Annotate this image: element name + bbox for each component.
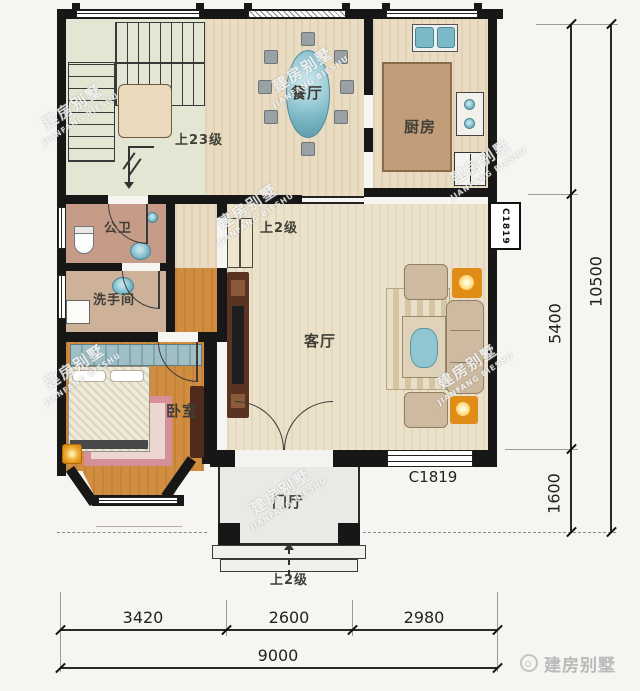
- stairwell-window-line: [77, 13, 199, 14]
- kitchen-window-line: [387, 13, 477, 14]
- side-table-lamp-glow: [456, 402, 470, 416]
- stove-burner: [464, 118, 475, 129]
- front-window-line: [388, 455, 472, 456]
- stair-treads-left: [68, 62, 115, 162]
- wall-bedroom-top-seg1: [57, 332, 158, 342]
- pillow: [72, 370, 106, 382]
- bay-sill-line: [96, 526, 182, 527]
- extension-line: [536, 24, 618, 25]
- dim-bottom-9000: 9000: [243, 646, 313, 665]
- bathroom-window-line: [61, 208, 62, 248]
- porch-column: [338, 523, 360, 545]
- wall-bath-divider-seg1: [66, 263, 122, 271]
- dining-chair: [334, 50, 348, 64]
- dim-right-1600: 1600: [545, 459, 564, 529]
- logo-text: 建房别墅: [544, 651, 616, 676]
- label-dining-room: 餐厅: [282, 86, 332, 102]
- label-bedroom: 卧室: [156, 404, 208, 420]
- stair-arrow-horizontal: [128, 146, 154, 148]
- dining-window: [248, 10, 346, 18]
- nightstand-lamp: [62, 444, 82, 464]
- label-front-window-code: C1819: [406, 468, 460, 486]
- wall-mid-seg1: [57, 195, 108, 204]
- dining-chair: [258, 80, 272, 94]
- logo-icon: [520, 654, 538, 672]
- sofa-cushion-line: [450, 362, 480, 363]
- wall-bedroom-right: [204, 342, 217, 454]
- kitchen-sink-basin: [437, 27, 455, 48]
- dim-bottom-2600: 2600: [254, 608, 324, 627]
- kitchen-sink-basin: [415, 27, 434, 48]
- fridge-divider: [470, 154, 471, 184]
- dim-right-10500: 10500: [587, 247, 606, 317]
- kitchen-window: [386, 10, 478, 18]
- coffee-table-glass: [410, 328, 438, 368]
- extension-line: [505, 449, 578, 450]
- washroom-door-leaf: [158, 271, 160, 309]
- wall-living-left-seg2: [217, 268, 227, 342]
- bathroom-window: [58, 207, 66, 249]
- label-entrance-hall: 门厅: [262, 495, 314, 511]
- interior-step: [227, 218, 240, 268]
- stair-arrowhead: [124, 182, 134, 189]
- sofa-cushion-line: [450, 330, 480, 331]
- stair-landing: [118, 84, 172, 138]
- bedroom-dresser: [190, 386, 204, 458]
- stair-mid-rail: [115, 62, 205, 64]
- sofa: [446, 300, 484, 394]
- label-washroom: 洗手间: [80, 294, 148, 308]
- dining-chair: [340, 80, 354, 94]
- dining-chair: [264, 110, 278, 124]
- side-table-lamp-glow: [459, 275, 474, 290]
- wall-kitchen-stub: [364, 128, 373, 152]
- wall-bath-right: [166, 204, 175, 332]
- wall-bottom-seg3: [473, 450, 497, 467]
- stair-arrow-vertical: [128, 146, 130, 184]
- side-window-label-box: C1819: [489, 202, 521, 250]
- kitchen-island: [382, 62, 452, 172]
- dining-chair: [301, 32, 315, 46]
- column-nub: [72, 3, 80, 10]
- bedroom-door-leaf: [196, 342, 198, 382]
- dimension-line-bottom-inner: [60, 629, 498, 631]
- side-window-code: C1819: [500, 208, 510, 245]
- entry-step-arrow: [288, 548, 290, 576]
- label-living-room: 客厅: [294, 334, 346, 350]
- pillow: [110, 370, 144, 382]
- bay-window-line: [99, 500, 177, 501]
- column-nub: [382, 3, 390, 10]
- wall-kitchen-left: [364, 19, 373, 95]
- column-nub: [244, 3, 252, 10]
- wall-bottom-seg2: [333, 450, 387, 467]
- floor-drain: [147, 212, 158, 223]
- wall-mid-seg2: [148, 195, 302, 204]
- extension-line-dashed: [363, 532, 616, 533]
- porch-column: [218, 523, 240, 545]
- logo-icon-dot: [525, 661, 531, 667]
- label-entrance-step: 上2级: [266, 574, 312, 588]
- dim-right-5400: 5400: [546, 289, 565, 359]
- bathroom-sink: [130, 242, 151, 260]
- armchair: [404, 264, 448, 300]
- column-nub: [342, 3, 350, 10]
- dimension-line-right-outer: [610, 24, 612, 533]
- column-nub: [474, 3, 482, 10]
- bathroom-door-leaf: [146, 204, 148, 244]
- wall-bedroom-top-seg2: [198, 332, 217, 342]
- column-nub: [196, 3, 204, 10]
- armchair: [404, 392, 448, 428]
- dining-chair: [264, 50, 278, 64]
- dimension-line-bottom-outer: [60, 667, 498, 669]
- stove-burner: [464, 99, 475, 110]
- wall-living-left-seg1: [217, 204, 227, 218]
- dining-chair: [334, 110, 348, 124]
- dining-hall-floor: [205, 19, 364, 196]
- corridor-floor-upper: [175, 204, 217, 268]
- label-stair-up: 上23级: [168, 134, 230, 148]
- dim-bottom-2980: 2980: [389, 608, 459, 627]
- stairwell-window: [76, 10, 200, 18]
- wall-kitchen-bottom: [364, 188, 497, 197]
- front-window-line: [388, 461, 472, 462]
- front-window-c1819: [387, 450, 473, 467]
- tv-screen: [232, 306, 244, 384]
- tv-cabinet-shelf: [231, 280, 245, 296]
- label-kitchen: 厨房: [394, 120, 446, 136]
- brand-logo: 建房别墅: [520, 650, 632, 676]
- entry-step-arrowhead: [284, 543, 294, 550]
- dimension-line-right-inner: [570, 24, 572, 533]
- hall-step-edge: [302, 196, 364, 198]
- label-interior-step: 上2级: [256, 222, 302, 236]
- dim-bottom-3420: 3420: [108, 608, 178, 627]
- washroom-window-line: [61, 276, 62, 318]
- floor-plan: C1819: [0, 0, 640, 691]
- washroom-window: [58, 275, 66, 319]
- extension-line-dashed: [57, 532, 207, 533]
- entry-door-opening: [235, 450, 333, 467]
- hall-step-edge: [302, 202, 364, 204]
- toilet-tank: [74, 226, 94, 234]
- label-public-bathroom: 公卫: [96, 222, 140, 236]
- interior-step: [240, 218, 253, 268]
- corridor-floor-lower: [175, 268, 217, 332]
- wall-bath-divider-seg2: [160, 263, 166, 271]
- dining-chair: [301, 142, 315, 156]
